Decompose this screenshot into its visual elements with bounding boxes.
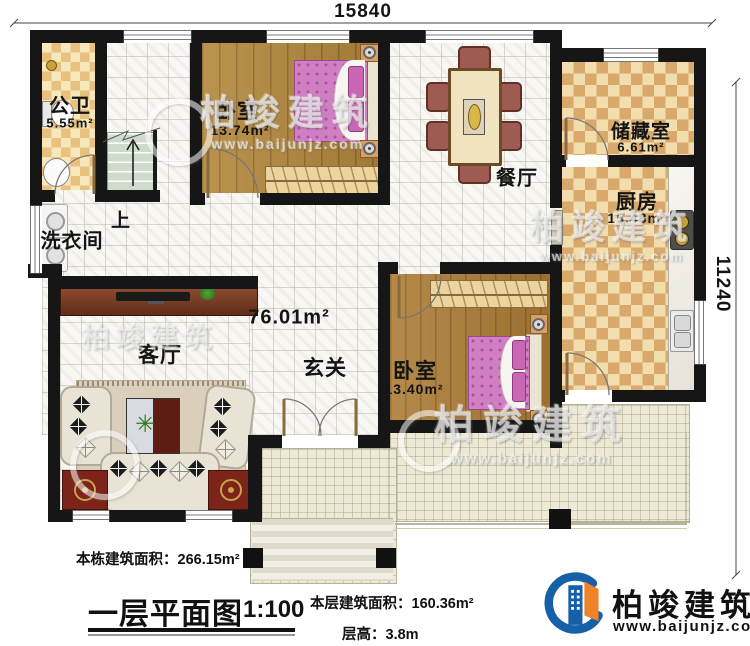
nightstand [360,140,380,158]
centerpiece [468,104,481,130]
sink-basin [674,315,691,331]
room-area-bedroom2: 13.40m² [384,381,443,397]
kitchen-door-panel [551,210,563,228]
plant-icon: ✳ [135,413,155,437]
wall [358,435,390,448]
sink-basin [674,332,691,348]
bathroom-sink [43,158,70,187]
wall [550,245,562,448]
burner-icon [675,215,689,229]
shower-icon [46,60,57,71]
wardrobe-rod [266,180,378,182]
wall [378,43,390,205]
wall [562,155,566,167]
room-label-dining: 餐厅 [496,162,538,191]
wall [95,190,160,202]
room-label-laundry: 洗衣间 [41,225,104,254]
room-label-bathroom: 公卫 [49,90,91,119]
title-underline-thin [88,634,295,636]
brand-logo-icon [538,572,610,640]
dimension-right: 11240 [711,256,733,313]
tv [116,292,190,301]
watermark-ring [398,410,460,472]
bedroom2-wardrobe [430,280,548,308]
stairs-up-label: 上 [111,206,131,233]
dimension-top: 15840 [334,1,392,23]
nightstand [530,314,548,334]
window [425,30,534,43]
floor-area: 本层建筑面积：160.36m² [310,592,474,613]
logo-building-blue [568,585,582,625]
plan-scale: 1:100 [243,596,304,624]
room-label-living: 客厅 [138,339,182,369]
room-label-hall: 玄关 [303,352,347,382]
window [72,510,110,522]
wall [440,262,562,274]
room-label-bedroom1: 卧室 [215,95,259,125]
tv-stand [148,301,164,304]
bed-pillow [512,340,526,370]
window [185,510,233,522]
kitchen-counter [668,167,695,390]
porch-column-right [376,548,396,568]
watermark-ring [145,98,213,166]
terrace-step-edge [395,523,687,525]
wall [48,276,258,289]
table-runner [463,99,485,135]
window [266,30,350,43]
wall [95,43,107,202]
logo-building-orange [584,581,598,621]
bedroom1-wardrobe [265,166,379,194]
terrace-step-edge2 [395,528,687,529]
burner-icon [675,232,689,246]
wall [550,390,565,402]
wall [608,155,706,167]
brand-url: www.baijunjz.com [613,618,750,635]
wall [248,435,262,522]
bed-pillow [348,100,364,132]
terrace-column [549,509,571,529]
medallion-icon [220,479,242,501]
kitchen-door-panel [551,227,563,245]
floor-height: 层高：3.8m [342,623,419,644]
kitchen-sink [670,310,694,352]
wall [260,193,390,205]
porch-steps [252,518,393,581]
total-building-area: 本栋建筑面积：266.15m² [76,548,240,569]
window [694,300,706,365]
floor-plan-canvas: ✳ [0,0,750,646]
porch-column-left [243,548,263,568]
lamp-icon [363,142,376,155]
wall [612,390,706,402]
room-area-bedroom1: 13.74m² [210,122,269,138]
lamp-icon [363,46,376,59]
bed-pillow [512,372,526,402]
window [603,48,659,62]
bed-pillow [348,66,364,98]
hall-area-label: 76.01m² [248,307,330,330]
watermark-ring [70,430,140,500]
title-underline [88,628,295,632]
plan-title: 一层平面图 [88,589,243,633]
wardrobe-rod [431,294,547,296]
window [123,30,192,43]
lamp-icon [532,318,545,331]
stove [670,210,694,250]
room-area-bathroom: 5.55m² [46,116,93,131]
room-area-storage: 6.61m² [617,140,664,155]
wall [30,190,55,202]
dining-table [448,68,502,166]
wall [48,276,60,522]
room-area-kitchen: 15.48m² [607,210,666,226]
wall [190,193,205,205]
